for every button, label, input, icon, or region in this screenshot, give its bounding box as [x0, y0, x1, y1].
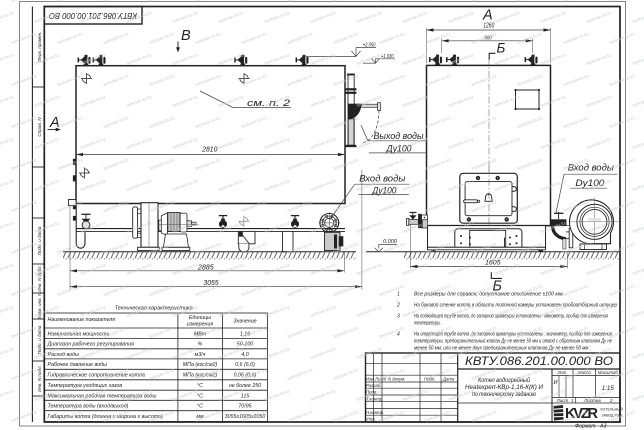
svg-text:КОТЕЛЬНЫЙ: КОТЕЛЬНЫЙ: [601, 408, 624, 412]
svg-text:1: 1: [571, 398, 574, 403]
svg-text:м3/ч: м3/ч: [195, 352, 206, 358]
svg-text:А: А: [482, 8, 493, 24]
svg-text:Н.контр.: Н.контр.: [366, 410, 384, 415]
svg-text:А3: А3: [599, 424, 606, 430]
svg-text:1260: 1260: [483, 23, 494, 30]
svg-text:°С: °С: [197, 394, 203, 400]
svg-text:2: 2: [609, 398, 613, 403]
svg-text:°С: °С: [197, 404, 203, 410]
svg-text:Формат: Формат: [575, 424, 596, 430]
svg-text:Heatexpert-КВр-1,16-К(К) И: Heatexpert-КВр-1,16-К(К) И: [465, 385, 544, 391]
svg-text:2885: 2885: [197, 262, 215, 271]
svg-text:70/95: 70/95: [238, 404, 251, 410]
svg-text:МПа (кгс/см2): МПа (кгс/см2): [183, 362, 218, 368]
svg-text:Вход воды: Вход воды: [359, 174, 406, 184]
svg-text:Б: Б: [497, 41, 506, 56]
svg-text:+1.930: +1.930: [381, 54, 394, 60]
svg-text:115: 115: [241, 394, 249, 400]
svg-text:Единицы: Единицы: [189, 315, 211, 321]
svg-text:Лист: Лист: [556, 398, 569, 403]
svg-text:%: %: [198, 342, 203, 348]
svg-text:Справ. N: Справ. N: [37, 117, 42, 137]
svg-text:0,6 (6,0): 0,6 (6,0): [235, 362, 255, 368]
svg-text:°С: °С: [197, 383, 203, 389]
svg-text:Значение: Значение: [233, 319, 256, 325]
svg-text:Инв. N подл.: Инв. N подл.: [37, 365, 42, 392]
svg-text:3: 3: [397, 314, 400, 320]
svg-text:4,0: 4,0: [241, 352, 248, 358]
svg-text:В: В: [181, 28, 191, 44]
svg-text:1605: 1605: [485, 260, 501, 267]
svg-text:температуры.: температуры.: [414, 321, 441, 327]
svg-text:не более 250: не более 250: [229, 383, 261, 389]
svg-text:Дата: Дата: [442, 377, 455, 382]
svg-text:Температура воды (вход/выход): Температура воды (вход/выход): [48, 404, 129, 410]
svg-text:Диапазон рабочего регулировани: Диапазон рабочего регулирования: [47, 342, 135, 348]
svg-text:Разраб.: Разраб.: [366, 383, 382, 388]
svg-text:1: 1: [397, 292, 400, 298]
svg-text:И: И: [553, 380, 557, 386]
svg-text:температуры, предохранительный: температуры, предохранительный клапан Ду…: [414, 338, 612, 345]
svg-text:измерения: измерения: [187, 322, 214, 328]
svg-text:Утв.: Утв.: [366, 417, 376, 422]
svg-text:2: 2: [396, 303, 400, 309]
svg-text:+2.050: +2.050: [363, 43, 376, 49]
svg-text:Ду100: Ду100: [371, 185, 396, 195]
svg-text:На подводящей трубе котла, до: На подводящей трубе котла, до запорной а…: [414, 313, 608, 320]
svg-text:N докум.: N докум.: [388, 377, 405, 382]
svg-text:2810: 2810: [201, 145, 217, 154]
svg-text:Рабочее давление воды: Рабочее давление воды: [48, 362, 107, 368]
svg-text:Температура уходящих газов: Температура уходящих газов: [48, 383, 123, 389]
svg-text:Подп. и дата: Подп. и дата: [37, 325, 42, 354]
